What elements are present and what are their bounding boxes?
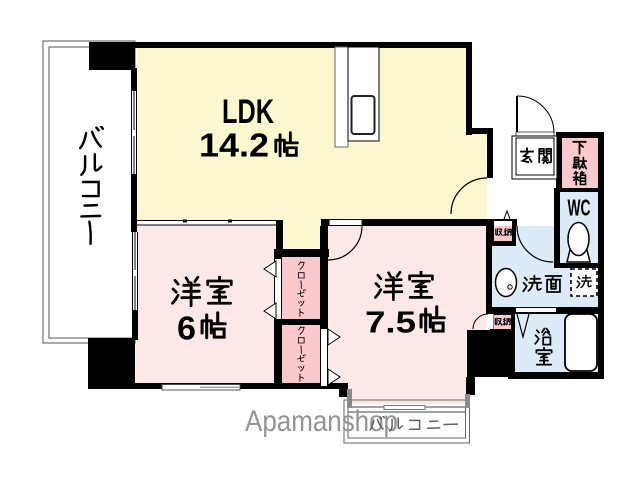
- svg-text:6: 6: [177, 310, 196, 347]
- svg-text:Apamanshop: Apamanshop: [245, 405, 398, 438]
- svg-text:LDK: LDK: [222, 93, 274, 131]
- svg-text:14.2: 14.2: [199, 127, 269, 164]
- svg-text:7.5: 7.5: [365, 305, 416, 340]
- svg-text:WC: WC: [568, 195, 591, 221]
